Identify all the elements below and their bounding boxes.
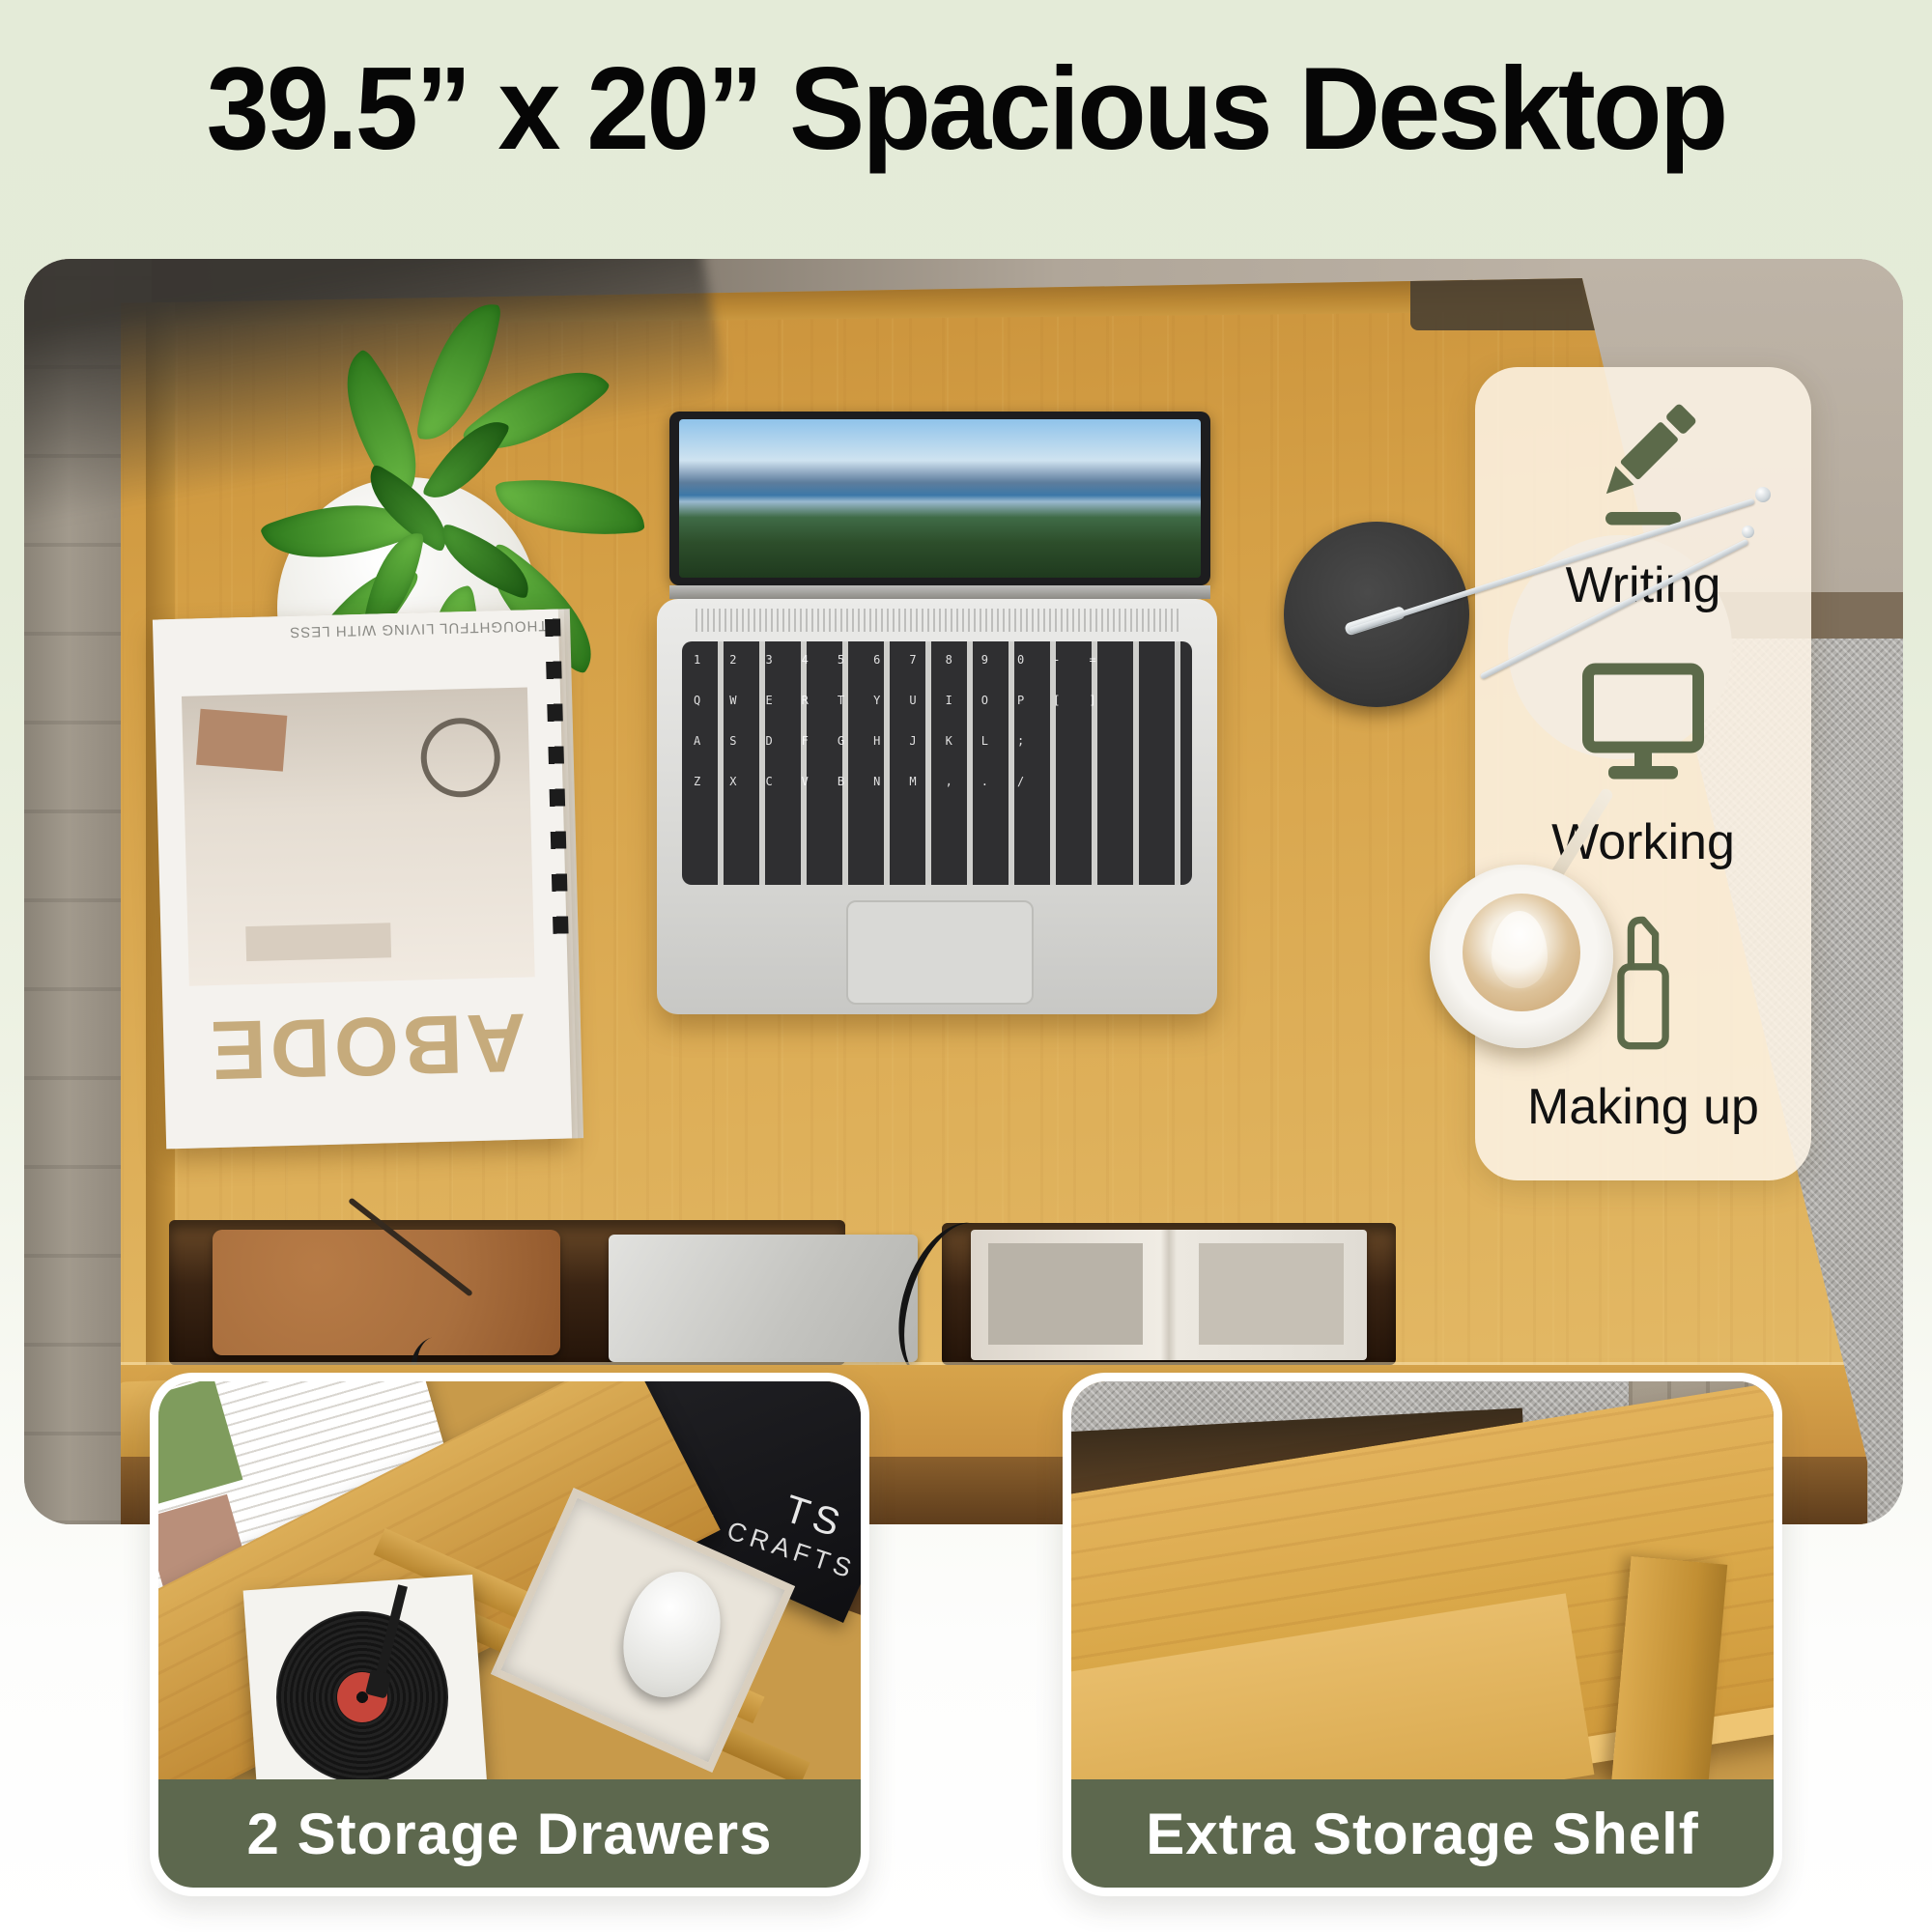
magazine-page [988, 1243, 1143, 1345]
magazine-photo [158, 1381, 242, 1512]
drawers-photo: TS E CRAFTS [158, 1381, 861, 1779]
page-title: 39.5” x 20” Spacious Desktop [39, 41, 1893, 176]
inset-storage-drawers: TS E CRAFTS 2 Storage Drawers [150, 1373, 869, 1896]
feature-label-writing: Writing [1475, 556, 1811, 614]
laptop-body: 1234567890-= QWERTYUIOP[] ASDFGHJKL; ZXC… [657, 599, 1217, 1014]
keyboard-row: QWERTYUIOP[] [694, 694, 1186, 707]
keyboard-row: ASDFGHJKL; [694, 734, 1186, 748]
shelf-photo [1071, 1381, 1774, 1779]
feature-label-making-up: Making up [1475, 1078, 1811, 1136]
inset-storage-shelf: Extra Storage Shelf [1063, 1373, 1782, 1896]
laptop-vent [696, 609, 1179, 632]
glasses-temple-tip [1742, 526, 1754, 538]
cover-detail [245, 923, 391, 961]
laptop-keyboard: 1234567890-= QWERTYUIOP[] ASDFGHJKL; ZXC… [682, 641, 1192, 885]
keyboard-row: 1234567890-= [694, 653, 1186, 667]
laptop-trackpad [846, 900, 1034, 1005]
laptop-screen [669, 412, 1210, 585]
main-desk-photo: ABODE THOUGHTFUL LIVING WITH LESS 123456… [24, 259, 1903, 1524]
pencil-icon [1571, 384, 1716, 529]
feature-label-working: Working [1475, 813, 1811, 871]
caption-storage-shelf: Extra Storage Shelf [1071, 1779, 1774, 1888]
stored-laptop [609, 1235, 918, 1362]
glasses-temple-tip [1755, 487, 1771, 502]
magazine-tagline: THOUGHTFUL LIVING WITH LESS [289, 617, 548, 640]
open-magazine-in-drawer [971, 1230, 1367, 1360]
leather-notebook [213, 1230, 560, 1355]
magazine-cover-photo [182, 687, 535, 985]
desk-leg [1611, 1556, 1728, 1779]
laptop-hinge [669, 585, 1210, 599]
abode-magazine: ABODE THOUGHTFUL LIVING WITH LESS [153, 610, 572, 1150]
caption-storage-drawers: 2 Storage Drawers [158, 1779, 861, 1888]
magazine-title: ABODE [162, 992, 570, 1098]
magazine-page [1199, 1243, 1344, 1345]
cover-detail [196, 709, 287, 772]
latte-art [1463, 894, 1580, 1011]
coffee-cup [1430, 865, 1613, 1048]
vinyl-record [276, 1611, 448, 1779]
keyboard-row: ZXCVBNM,./ [694, 775, 1186, 788]
laptop-wallpaper [679, 419, 1201, 578]
monitor-icon [1571, 657, 1716, 797]
cover-detail [420, 717, 501, 798]
